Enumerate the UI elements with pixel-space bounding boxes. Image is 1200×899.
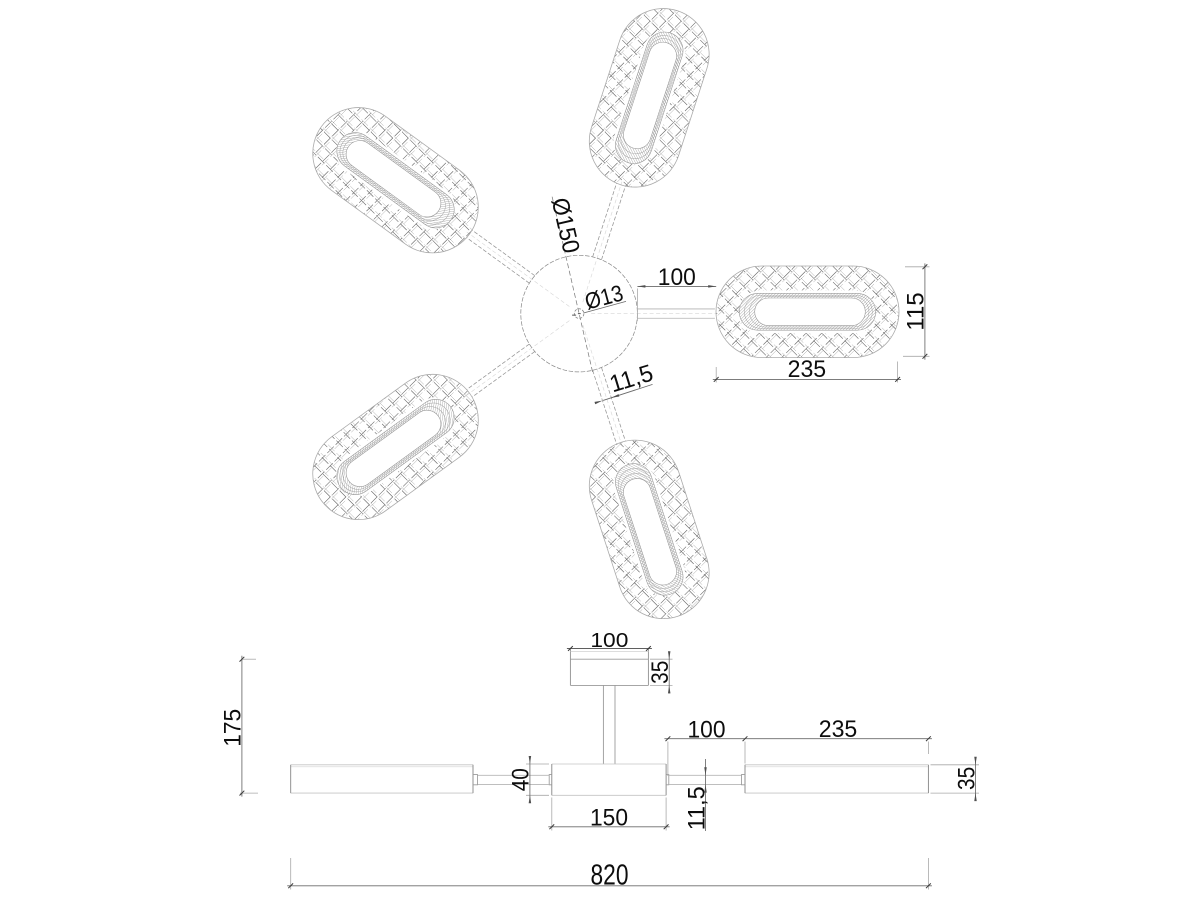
svg-text:40: 40 bbox=[508, 768, 535, 791]
svg-text:100: 100 bbox=[688, 716, 726, 743]
svg-text:235: 235 bbox=[788, 356, 827, 383]
svg-text:235: 235 bbox=[819, 716, 858, 743]
svg-text:100: 100 bbox=[658, 264, 696, 291]
svg-text:100: 100 bbox=[590, 629, 628, 652]
svg-text:150: 150 bbox=[590, 805, 628, 832]
svg-text:35: 35 bbox=[647, 661, 674, 684]
svg-text:115: 115 bbox=[903, 292, 930, 331]
svg-text:35: 35 bbox=[953, 767, 980, 790]
svg-text:820: 820 bbox=[591, 860, 629, 892]
svg-text:175: 175 bbox=[220, 709, 247, 747]
svg-text:11,5: 11,5 bbox=[683, 786, 710, 830]
